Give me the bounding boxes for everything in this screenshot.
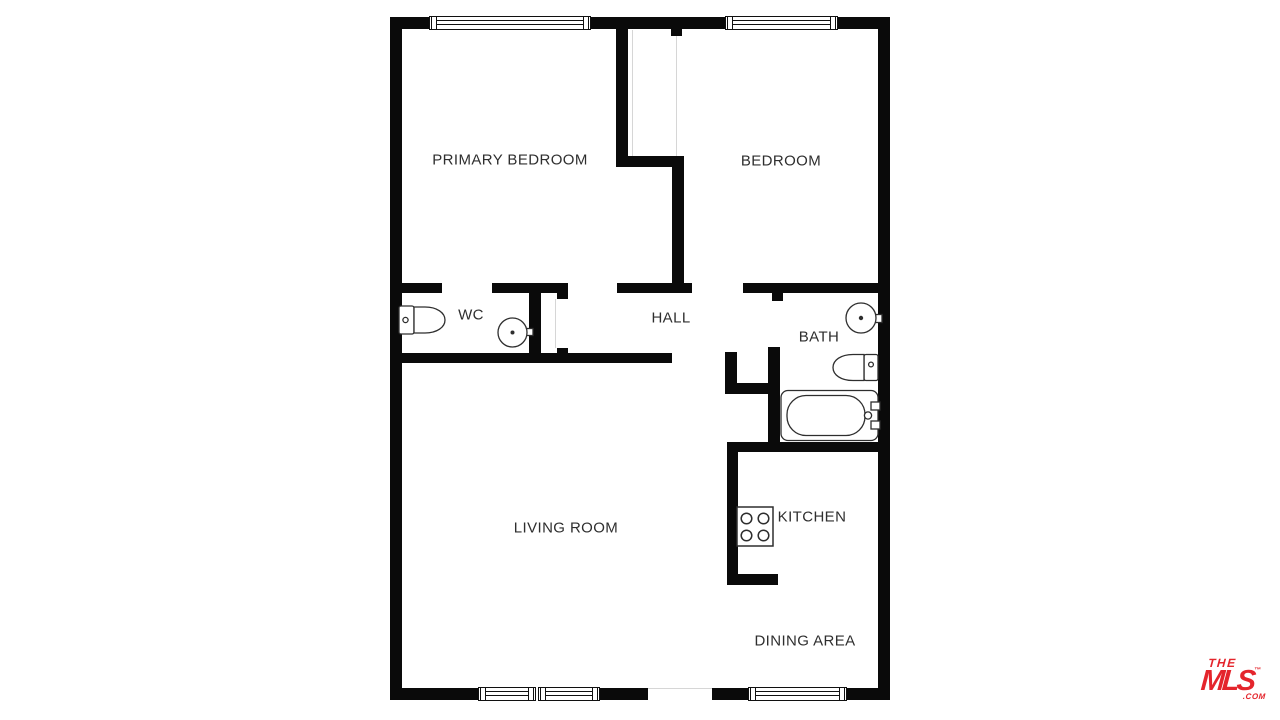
toilet-icon bbox=[833, 355, 878, 381]
room-label-primary-bedroom: PRIMARY BEDROOM bbox=[432, 152, 587, 169]
logo-trademark: ™ bbox=[1254, 667, 1261, 674]
room-label-dining-area: DINING AREA bbox=[754, 633, 855, 650]
room-label-wc: WC bbox=[458, 307, 484, 324]
room-label-bedroom: BEDROOM bbox=[741, 153, 821, 170]
room-label-bath: BATH bbox=[799, 329, 840, 346]
room-label-hall: HALL bbox=[651, 310, 690, 327]
bathtub-icon bbox=[781, 391, 880, 441]
themls-logo: THE MLS™ .COM bbox=[1199, 657, 1268, 701]
fixtures-layer bbox=[0, 0, 1280, 720]
toilet-icon bbox=[399, 306, 445, 334]
room-label-kitchen: KITCHEN bbox=[778, 509, 847, 526]
sink-icon bbox=[846, 303, 882, 333]
sink-icon bbox=[498, 318, 533, 347]
room-label-living-room: LIVING ROOM bbox=[514, 520, 618, 537]
floorplan-canvas: PRIMARY BEDROOM BEDROOM WC HALL BATH LIV… bbox=[0, 0, 1280, 720]
stove-icon bbox=[737, 507, 773, 546]
